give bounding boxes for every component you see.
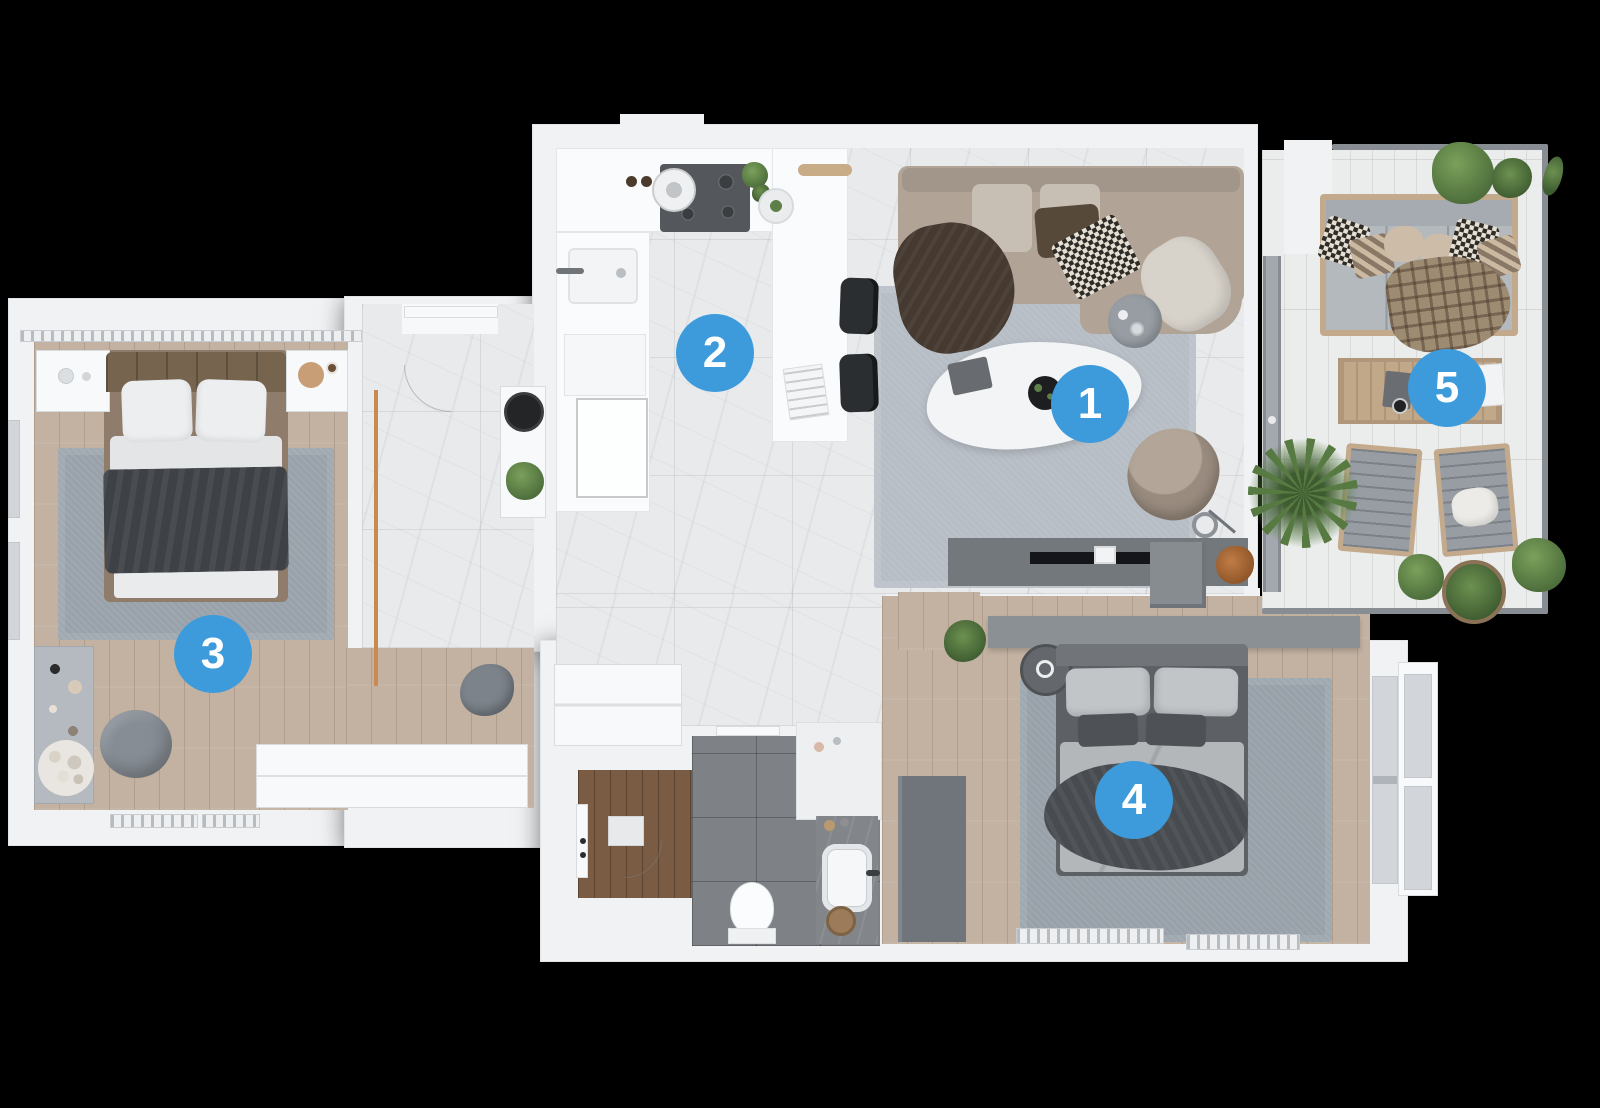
room-marker-bedroom4-number: 4 xyxy=(1122,778,1146,822)
console-art-frame xyxy=(1094,546,1116,564)
bedroom3-bottom-window-2 xyxy=(202,814,260,828)
bedroom4-headboard xyxy=(1056,644,1248,666)
bar-stool-1 xyxy=(839,277,879,334)
bathroom-faucet xyxy=(866,870,880,876)
bedroom3-pillow-2 xyxy=(195,379,267,443)
room-marker-bedroom3-number: 3 xyxy=(201,632,225,676)
toilet-bowl xyxy=(730,882,774,934)
bedroom3-left-window-1 xyxy=(8,420,20,518)
bedroom3-door-threshold xyxy=(374,390,378,686)
bedroom3-pillow-1 xyxy=(121,379,193,443)
bathroom-sink xyxy=(822,844,872,912)
bathroom-bottle-1 xyxy=(824,820,835,831)
side-table-ring xyxy=(1130,322,1144,336)
bedroom4-pillow-1 xyxy=(1066,667,1151,716)
bathroom-bottle-2 xyxy=(840,818,849,827)
kitchen-jar-1 xyxy=(626,176,637,187)
bedroom4-wardrobe xyxy=(898,776,966,942)
terrace-bush-1 xyxy=(1398,554,1444,600)
kitchen-plate xyxy=(758,188,794,224)
sink-drain xyxy=(616,268,626,278)
bedroom4-cushion-1 xyxy=(1077,713,1138,747)
entry-top-door-leaf xyxy=(404,306,498,318)
bedroom4-bottom-window-1 xyxy=(1016,928,1164,944)
bedroom3-pouf xyxy=(100,710,172,778)
wall-vent-nub xyxy=(620,114,704,126)
bar-stool-2 xyxy=(839,353,879,412)
nightstand-left xyxy=(36,350,110,412)
room-marker-bedroom3[interactable]: 3 xyxy=(174,615,252,693)
cooking-pot xyxy=(652,168,696,212)
room-marker-living-number: 1 xyxy=(1078,382,1102,426)
bathroom-door-leaf xyxy=(716,726,780,736)
nightstand-left-lamp xyxy=(58,368,74,384)
bedroom3-top-window xyxy=(20,330,362,342)
bedroom4-bottom-window-2 xyxy=(1186,934,1300,950)
room-marker-terrace[interactable]: 5 xyxy=(1408,349,1486,427)
terrace-door-handle xyxy=(1268,416,1276,424)
vanity-flowers xyxy=(38,740,94,796)
floor-plan-canvas: 1 2 3 4 5 xyxy=(0,0,1600,1108)
terrace-railing-bottom xyxy=(1262,608,1548,614)
bedroom3-left-window-2 xyxy=(8,542,20,640)
bedroom4-cushion-2 xyxy=(1145,713,1206,747)
bathroom-shower-zone xyxy=(796,722,882,820)
bathroom-woven-mat xyxy=(826,906,856,936)
side-table-dot xyxy=(1118,310,1128,320)
entry-cabinet xyxy=(554,664,682,746)
nightstand-right-tray xyxy=(298,362,324,388)
entry-hook-1 xyxy=(580,838,586,844)
bedroom4-right-window xyxy=(1372,676,1398,884)
terrace-bush-2 xyxy=(1442,560,1506,624)
island-magazine xyxy=(783,363,830,420)
entry-doormat xyxy=(608,816,644,846)
entry-hook-2 xyxy=(580,852,586,858)
room-marker-kitchen-number: 2 xyxy=(703,331,727,375)
bedroom3-bottom-window-1 xyxy=(110,814,198,828)
nightstand-left-dot xyxy=(82,372,91,381)
terrace-plant-top-1 xyxy=(1432,142,1494,204)
bay-window-pane-2 xyxy=(1404,786,1432,890)
kitchen-fridge xyxy=(576,398,648,498)
sink-faucet xyxy=(556,268,584,274)
terrace-palm-plant xyxy=(1248,438,1358,548)
table-cup xyxy=(1392,398,1408,414)
headphones xyxy=(1036,660,1054,678)
tv-screen xyxy=(1030,552,1150,564)
bedroom3-dresser xyxy=(256,744,528,808)
kitchen-shelf xyxy=(564,334,646,396)
nightstand-right-cup xyxy=(326,362,338,374)
console-plant xyxy=(506,462,544,500)
bedroom3-blanket xyxy=(103,466,289,573)
terrace-bush-3 xyxy=(1512,538,1566,592)
console-bowl xyxy=(504,392,544,432)
bay-window-pane-1 xyxy=(1404,674,1432,778)
room-marker-bedroom4[interactable]: 4 xyxy=(1095,761,1173,839)
bedroom4-pillow-2 xyxy=(1154,667,1239,716)
cutting-board xyxy=(798,164,852,176)
side-table xyxy=(1108,294,1162,348)
room-marker-terrace-number: 5 xyxy=(1435,366,1459,410)
kitchen-jar-2 xyxy=(641,176,652,187)
room-marker-living[interactable]: 1 xyxy=(1051,365,1129,443)
toilet-tank xyxy=(728,928,776,944)
room-marker-kitchen[interactable]: 2 xyxy=(676,314,754,392)
console-speaker-box xyxy=(1150,542,1206,608)
kitchen-sink xyxy=(568,248,638,304)
